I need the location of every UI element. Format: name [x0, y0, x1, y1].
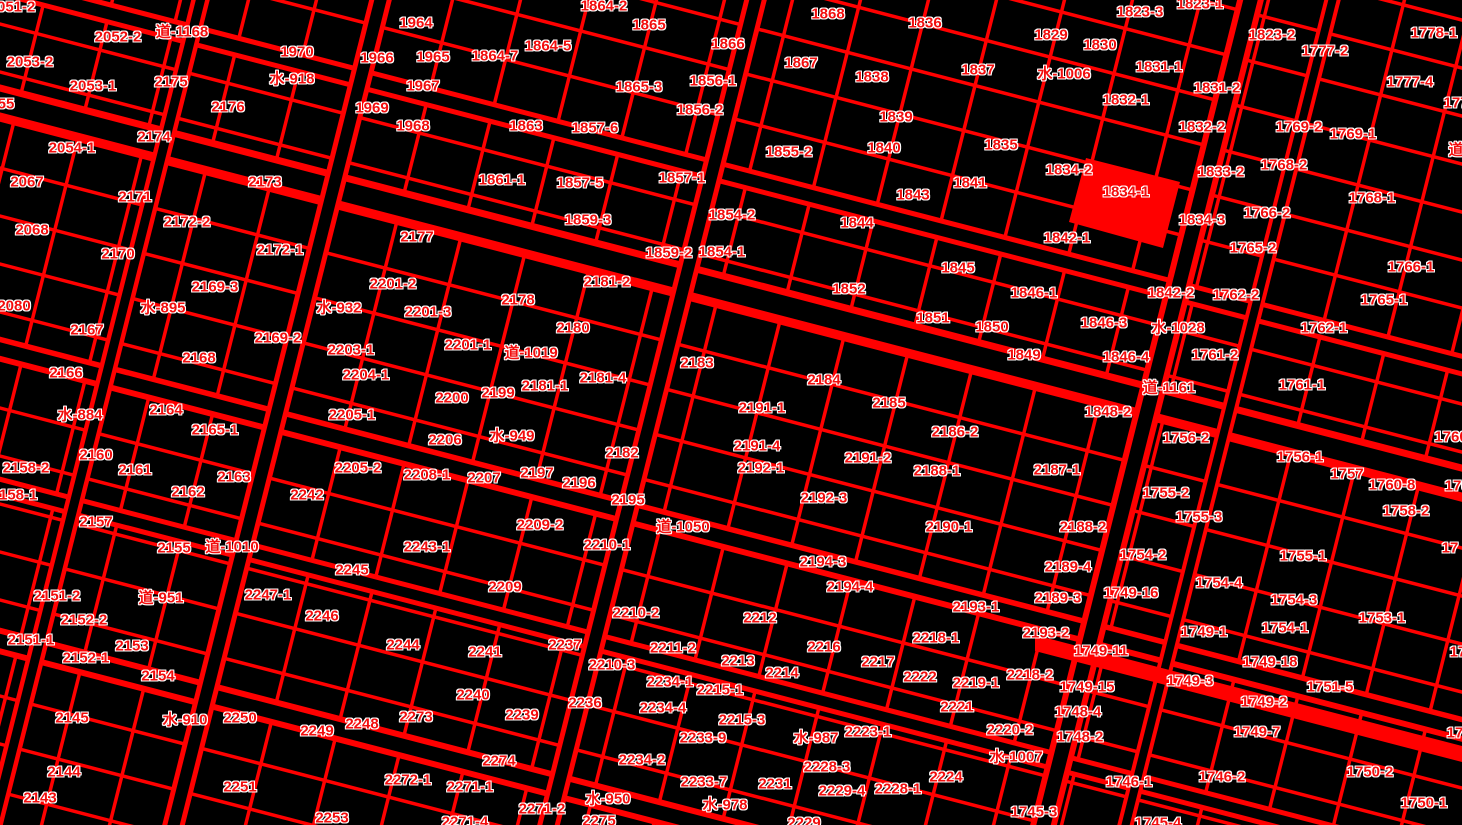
parcel-label: 1777-2	[1302, 44, 1349, 59]
road-label: 道-1010	[205, 540, 258, 555]
parcel-label: 2188-2	[1060, 520, 1107, 535]
parcel-label: 1768-1	[1349, 191, 1396, 206]
parcel-label: 2199	[481, 386, 514, 401]
parcel-label: 1857-6	[572, 121, 619, 136]
parcel-label: 2207	[467, 471, 500, 486]
parcel-label: 1859-3	[565, 213, 612, 228]
parcel-label: 2165-1	[192, 423, 239, 438]
parcel-label: 1750-1	[1401, 796, 1448, 811]
parcel-label: 2172-2	[164, 215, 211, 230]
parcel-label: 2186-2	[932, 425, 979, 440]
parcel-label: 1837	[961, 63, 994, 78]
parcel-label: 2215-1	[697, 683, 744, 698]
parcel-label: 2191-1	[739, 401, 786, 416]
parcel-label: 1760	[1434, 430, 1462, 445]
parcel-label: 2228-1	[875, 782, 922, 797]
parcel-label: 2164	[149, 403, 182, 418]
parcel-label: 2182	[605, 446, 638, 461]
parcel-label: 2158-1	[0, 488, 37, 503]
parcel-label: 1755-1	[1280, 549, 1327, 564]
parcel-label: 2143	[23, 791, 56, 806]
parcel-label: 1746-1	[1106, 775, 1153, 790]
parcel-label: 2200	[435, 391, 468, 406]
parcel-label: 1868	[811, 7, 844, 22]
parcel-label: 2206	[428, 433, 461, 448]
parcel-label: 2214	[765, 666, 798, 681]
parcel-label: 1754-2	[1120, 548, 1167, 563]
parcel-label: 1761-1	[1279, 378, 1326, 393]
parcel-label: 1760-8	[1369, 478, 1416, 493]
parcel-label: 2154	[141, 669, 174, 684]
parcel-label: 2188-1	[914, 464, 961, 479]
parcel-label: 2167	[70, 323, 103, 338]
parcel-label: 2152-2	[61, 613, 108, 628]
parcel-label: 2253	[315, 811, 348, 825]
water-label: 水-949	[489, 429, 534, 444]
water-label: 水-932	[316, 301, 361, 316]
parcel-label: 1831-2	[1194, 81, 1241, 96]
parcel-label: 2053-1	[70, 79, 117, 94]
parcel-label: 2234-1	[647, 675, 694, 690]
parcel-label: 1964	[399, 16, 432, 31]
parcel-label: 1768-2	[1261, 158, 1308, 173]
parcel-label: 1756-2	[1163, 431, 1210, 446]
parcel-label: 2053-2	[7, 55, 54, 70]
parcel-label: 2221	[940, 700, 973, 715]
parcel-label: 2215-3	[719, 713, 766, 728]
parcel-label: 2245	[335, 563, 368, 578]
parcel-label: 1769-1	[1330, 127, 1377, 142]
parcel-label: 1855-2	[766, 145, 813, 160]
parcel-label: 1749-3	[1167, 674, 1214, 689]
parcel-label: 2205-2	[335, 461, 382, 476]
parcel-label: 1749-2	[1241, 695, 1288, 710]
water-label: 水-1006	[1037, 67, 1090, 82]
parcel-label: 2151-2	[34, 589, 81, 604]
parcel-label: 2195	[611, 493, 644, 508]
road-label: 道-1050	[656, 520, 709, 535]
parcel-label: 2241	[468, 645, 501, 660]
parcel-label: 1863	[509, 119, 542, 134]
parcel-label: 1762-1	[1301, 321, 1348, 336]
water-label: 水-987	[793, 731, 838, 746]
water-label: 水-978	[702, 798, 747, 813]
parcel-label: 2271-4	[442, 815, 489, 825]
parcel-label: 2191-4	[734, 439, 781, 454]
parcel-label: 1857-5	[557, 176, 604, 191]
parcel-label: 2211-2	[650, 641, 696, 656]
parcel-label: 1757	[1330, 467, 1363, 482]
parcel-label: 2192-3	[801, 491, 848, 506]
parcel-label: 1846-4	[1103, 350, 1150, 365]
parcel-label: 2234-2	[619, 753, 666, 768]
parcel-label: 1755-3	[1176, 510, 1223, 525]
parcel-label: 2158-2	[3, 461, 50, 476]
parcel-label: 2236	[568, 696, 601, 711]
parcel-label: 1823-3	[1117, 5, 1164, 20]
parcel-label: 2222	[903, 670, 936, 685]
parcel-label: 2181-2	[584, 275, 631, 290]
water-label: 水-884	[57, 408, 102, 423]
parcel-label: 2233-7	[681, 775, 728, 790]
parcel-line	[1457, 0, 1462, 825]
parcel-label: 2249	[300, 724, 333, 739]
parcel-label: 2161	[118, 463, 151, 478]
road-label: 道-1168	[156, 25, 209, 40]
parcel-label: 1968	[396, 119, 429, 134]
parcel-label: 2194-3	[800, 555, 847, 570]
parcel-label: 2201-3	[405, 305, 452, 320]
parcel-label: 2190-1	[926, 520, 973, 535]
parcel-label: 1841	[953, 176, 986, 191]
parcel-label: 2166	[49, 366, 82, 381]
parcel-label: 177	[1443, 96, 1462, 111]
parcel-label: 2175	[154, 75, 187, 90]
parcel-label: 2234-4	[640, 701, 687, 716]
road-label: 道-1019	[504, 346, 557, 361]
parcel-label: 2194-4	[827, 580, 874, 595]
parcel-label: 2189-4	[1045, 560, 1092, 575]
parcel-label: 1769-2	[1276, 120, 1323, 135]
parcel-label: 1830	[1083, 38, 1116, 53]
parcel-label: 2196	[562, 476, 595, 491]
parcel-label: 2233-9	[680, 731, 727, 746]
parcel-label: 1765-2	[1230, 241, 1277, 256]
parcel-label: 1748-2	[1057, 730, 1104, 745]
parcel-label: 2210-3	[589, 658, 636, 673]
parcel-label: 1844	[840, 216, 873, 231]
parcel-label: 2145	[55, 711, 88, 726]
parcel-label: 1834-2	[1046, 163, 1093, 178]
parcel-label: 2240	[456, 688, 489, 703]
parcel-label: 2212	[743, 611, 776, 626]
parcel-label: 2054-1	[49, 141, 96, 156]
parcel-label: 1835	[984, 138, 1017, 153]
parcel-label: 2067	[10, 175, 43, 190]
parcel-label: 1823-2	[1249, 28, 1296, 43]
parcel-label: 2163	[217, 470, 250, 485]
parcel-label: 2275	[582, 814, 615, 825]
parcel-label: 2218-1	[913, 631, 960, 646]
parcel-label: 2172-1	[257, 243, 304, 258]
parcel-label: 1836	[908, 16, 941, 31]
parcel-label: 1854-2	[709, 208, 756, 223]
parcel-label: 2169-3	[192, 280, 239, 295]
parcel-label: 2193-1	[953, 600, 1000, 615]
parcel-label: 2271-1	[447, 780, 494, 795]
parcel-label: 1839	[879, 110, 912, 125]
parcel-label: 2209	[488, 580, 521, 595]
parcel-label: 2229	[787, 816, 820, 825]
parcel-label: 1758-2	[1383, 504, 1430, 519]
parcel-label: 2220-2	[987, 723, 1034, 738]
parcel-label: 1751-1	[1447, 726, 1462, 741]
parcel-label: 2246	[305, 609, 338, 624]
parcel-label: 1749-15	[1059, 680, 1114, 695]
parcel-label: 1857-1	[659, 171, 706, 186]
parcel-label: 1849	[1007, 348, 1040, 363]
parcel-label: 2271-2	[519, 802, 566, 817]
parcel-label: 2184	[807, 373, 840, 388]
parcel-label: 2144	[47, 765, 80, 780]
water-label: 水-950	[585, 792, 630, 807]
parcel-label: 2231	[758, 777, 791, 792]
parcel-label: 2068	[15, 223, 48, 238]
parcel-label: 1778-1	[1411, 26, 1458, 41]
parcel-label: 2210-1	[584, 538, 631, 553]
road-label: 道	[1448, 143, 1462, 158]
parcel-label: 2223-1	[845, 725, 892, 740]
parcel-label: 2192-1	[738, 461, 785, 476]
parcel-label: 1833-2	[1198, 165, 1245, 180]
parcel-label: 1755-2	[1143, 486, 1190, 501]
parcel-label: 2205-1	[329, 408, 376, 423]
parcel-label: 2178	[501, 293, 534, 308]
water-label: 水-918	[269, 72, 314, 87]
parcel-label: 2181-1	[522, 379, 569, 394]
parcel-label: 1745-4	[1135, 816, 1182, 825]
parcel-label: 2169-2	[255, 331, 302, 346]
water-label: 水-1007	[989, 750, 1042, 765]
parcel-label: 2272-1	[385, 773, 432, 788]
parcel-label: 1856-2	[677, 103, 724, 118]
parcel-label: 1848-2	[1085, 405, 1132, 420]
parcel-label: 1754-1	[1262, 621, 1309, 636]
parcel-label: 1846-3	[1081, 316, 1128, 331]
parcel-label: 2229-4	[819, 784, 866, 799]
parcel-label: 2157	[79, 515, 112, 530]
parcel-label: 1856-1	[690, 74, 737, 89]
parcel-label: 1842-1	[1044, 231, 1091, 246]
parcel-label: 2152-1	[63, 651, 110, 666]
parcel-label: 1766-2	[1244, 206, 1291, 221]
parcel-label: 1749-16	[1103, 586, 1158, 601]
parcel-label: 1748-4	[1055, 705, 1102, 720]
parcel-label: 1765-1	[1361, 293, 1408, 308]
water-label: 水-910	[162, 713, 207, 728]
parcel-label: 1750-2	[1347, 765, 1394, 780]
parcel-label: 2168	[182, 351, 215, 366]
parcel-label: 2237	[548, 638, 581, 653]
parcel-label: 2189-3	[1035, 591, 1082, 606]
parcel-label: 1966	[360, 51, 393, 66]
parcel-label: 1846-1	[1011, 286, 1058, 301]
parcel-label: 2243-1	[404, 540, 451, 555]
parcel-label: 2213	[721, 654, 754, 669]
road-label: 道-951	[138, 591, 183, 606]
parcel-label: 1831-1	[1136, 60, 1183, 75]
parcel-label: 2210-2	[613, 606, 660, 621]
parcel-label: 2173	[248, 175, 281, 190]
parcel-label: 2274	[482, 754, 515, 769]
parcel-label: 2219-1	[953, 676, 1000, 691]
parcel-label: 2204-1	[343, 368, 390, 383]
parcel-label: 2197	[520, 466, 553, 481]
parcel-label: 2153	[115, 639, 148, 654]
parcel-label: 17	[1442, 541, 1459, 556]
parcel-label: 1845	[941, 261, 974, 276]
parcel-label: 1840	[867, 141, 900, 156]
parcel-label: 1823-1	[1177, 0, 1224, 12]
parcel-label: 2171	[118, 190, 151, 205]
parcel-label: 1766-1	[1388, 260, 1435, 275]
parcel-label: 1749-7	[1234, 725, 1281, 740]
parcel-label: 2208-1	[404, 468, 451, 483]
parcel-label: 1832-2	[1179, 120, 1226, 135]
parcel-label: 1865	[632, 18, 665, 33]
parcel-label: 1760-6	[1445, 479, 1462, 494]
parcel-label: 2185	[872, 396, 905, 411]
parcel-label: 1851	[916, 311, 949, 326]
parcel-label: 2201-1	[445, 338, 492, 353]
parcel-label: 1864-7	[472, 49, 519, 64]
parcel-label: 2228-3	[804, 760, 851, 775]
parcel-label: 2151-1	[8, 633, 55, 648]
parcel-label: 2177	[400, 230, 433, 245]
parcel-label: 1777-4	[1387, 75, 1434, 90]
parcel-label: 17	[1450, 645, 1462, 660]
parcel-label: 1753-1	[1359, 611, 1406, 626]
parcel-label: 2170	[101, 247, 134, 262]
water-label: 水-1028	[1151, 321, 1204, 336]
parcel-label: 2273	[399, 710, 432, 725]
parcel-label: 2051-2	[0, 0, 35, 15]
parcel-label: 1749-18	[1242, 655, 1297, 670]
parcel-label: 2176	[211, 100, 244, 115]
parcel-label: 2251	[223, 780, 256, 795]
parcel-label: 2217	[861, 655, 894, 670]
parcel-label: 1751-5	[1307, 680, 1354, 695]
parcel-label: 2247-1	[245, 588, 292, 603]
parcel-label: 1832-1	[1103, 93, 1150, 108]
parcel-label: 1854-1	[699, 245, 746, 260]
parcel-label: 1762-2	[1213, 288, 1260, 303]
parcel-label: 2250	[223, 711, 256, 726]
parcel-label: 2218-2	[1007, 668, 1054, 683]
parcel-label: 2174	[137, 130, 170, 145]
parcel-label: 1867	[784, 56, 817, 71]
parcel-label: 2244	[386, 638, 419, 653]
parcel-label: 2239	[505, 708, 538, 723]
parcel-label: 1866	[711, 37, 744, 52]
water-label: 水-895	[140, 301, 185, 316]
parcel-label: 1756-1	[1277, 450, 1324, 465]
parcel-label: 1861-1	[479, 173, 526, 188]
parcel-label: 1843	[896, 188, 929, 203]
parcel-label: 1864-5	[525, 39, 572, 54]
cadastral-map[interactable]: 2051-22052-2道-11681970水-9182053-22053-12…	[0, 0, 1462, 825]
parcel-label: 1850	[975, 320, 1008, 335]
parcel-label: 1842-2	[1148, 286, 1195, 301]
parcel-label: 55	[0, 97, 14, 112]
parcel-label: 2180	[556, 321, 589, 336]
parcel-label: 2193-2	[1023, 626, 1070, 641]
parcel-label: 2160	[79, 448, 112, 463]
parcel-label: 1969	[355, 101, 388, 116]
parcel-label: 1859-2	[646, 246, 693, 261]
road-label: 道-1161	[1143, 381, 1196, 396]
parcel-label: 2181-4	[580, 371, 627, 386]
parcel-label: 2242	[290, 488, 323, 503]
parcel-label: 2248	[345, 717, 378, 732]
parcel-label: 1834-3	[1179, 213, 1226, 228]
parcel-label: 1754-4	[1196, 576, 1243, 591]
parcel-label: 2209-2	[517, 518, 564, 533]
parcel-label: 2052-2	[95, 30, 142, 45]
parcel-label: 2216	[807, 640, 840, 655]
parcel-label: 1865-3	[616, 80, 663, 95]
parcel-label: 2191-2	[845, 451, 892, 466]
parcel-label: 1838	[855, 70, 888, 85]
parcel-label: 2187-1	[1034, 463, 1081, 478]
parcel-label: 2203-1	[328, 343, 375, 358]
parcel-label: 1761-2	[1192, 348, 1239, 363]
parcel-label: 1965	[416, 50, 449, 65]
parcel-label: 1749-1	[1181, 625, 1228, 640]
parcel-label: 2201-2	[370, 277, 417, 292]
parcel-label: 1967	[406, 79, 439, 94]
parcel-label: 2080	[0, 299, 31, 314]
parcel-label: 1746-2	[1199, 770, 1246, 785]
parcel-label: 1745-3	[1011, 805, 1058, 820]
parcel-label: 2224	[929, 770, 962, 785]
parcel-label: 1749-11	[1074, 644, 1128, 659]
parcel-label: 1852	[832, 282, 865, 297]
parcel-label: 2162	[171, 485, 204, 500]
parcel-label: 2155	[157, 541, 190, 556]
parcel-label: 2183	[680, 356, 713, 371]
parcel-label: 1834-1	[1103, 185, 1150, 200]
parcel-label: 1864-2	[581, 0, 628, 14]
parcel-label: 1754-3	[1271, 593, 1318, 608]
parcel-label: 1829	[1034, 28, 1067, 43]
parcel-label: 1970	[280, 45, 313, 60]
